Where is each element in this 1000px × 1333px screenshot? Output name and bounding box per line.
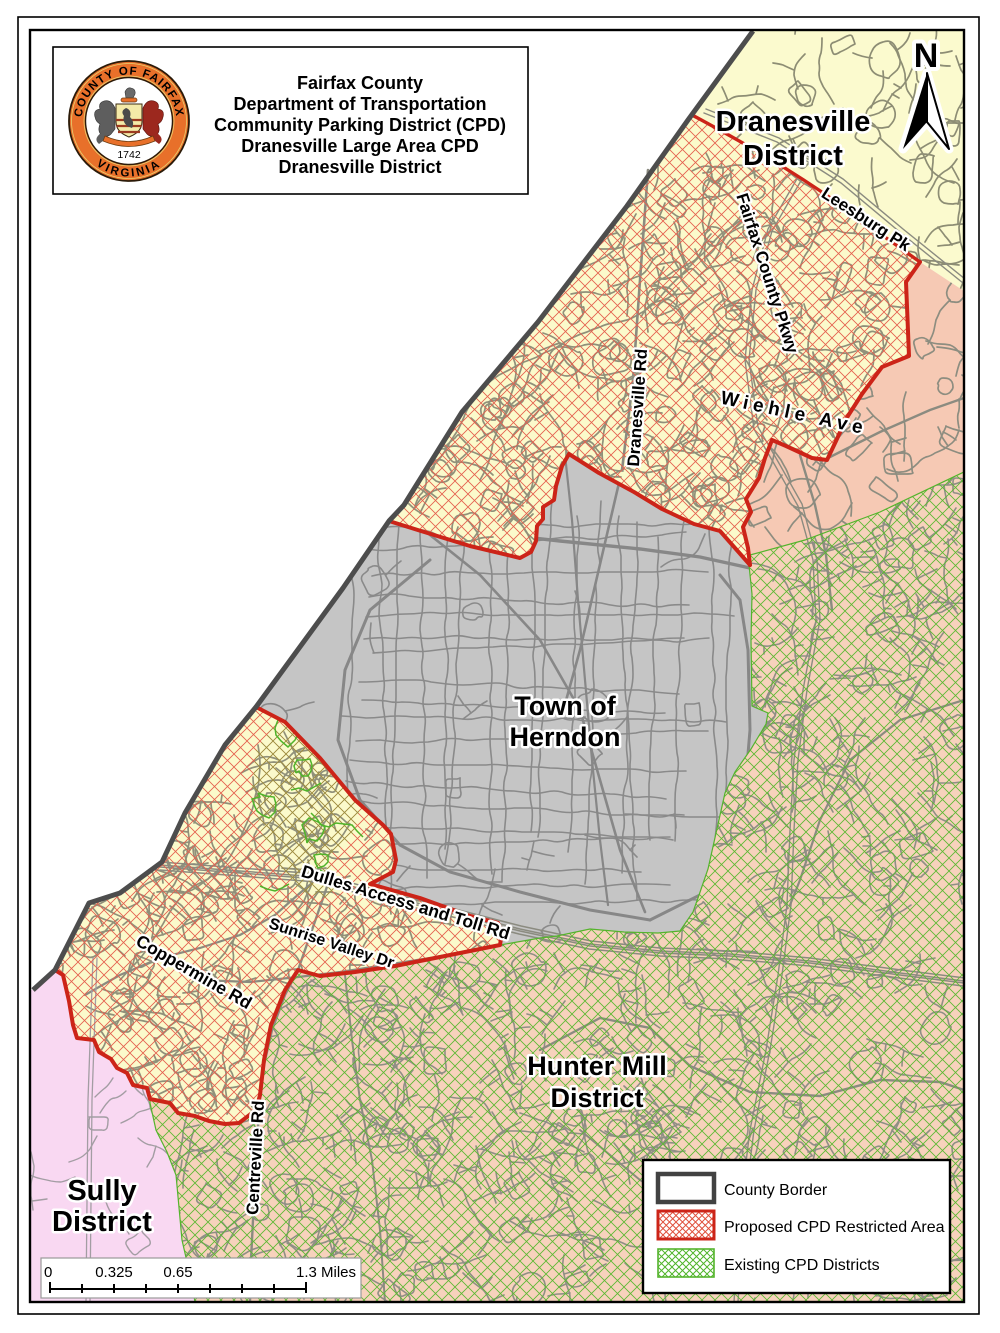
svg-text:District: District — [52, 1206, 152, 1238]
svg-text:Community Parking District (CP: Community Parking District (CPD) — [214, 115, 506, 135]
svg-text:N: N — [914, 37, 939, 75]
svg-text:0.65: 0.65 — [163, 1264, 192, 1281]
svg-text:District: District — [550, 1083, 643, 1113]
svg-text:Sully: Sully — [67, 1175, 136, 1207]
svg-text:1742: 1742 — [117, 149, 141, 161]
svg-text:Town of: Town of — [514, 691, 616, 721]
svg-text:1.3 Miles: 1.3 Miles — [296, 1264, 356, 1281]
svg-text:Dranesville: Dranesville — [716, 106, 871, 138]
svg-text:Dranesville District: Dranesville District — [278, 157, 441, 177]
svg-text:Hunter Mill: Hunter Mill — [527, 1051, 667, 1081]
svg-text:Proposed CPD Restricted Area: Proposed CPD Restricted Area — [724, 1219, 945, 1236]
svg-text:Dranesville Large Area CPD: Dranesville Large Area CPD — [241, 136, 478, 156]
svg-text:0: 0 — [44, 1264, 52, 1281]
svg-text:0.325: 0.325 — [95, 1264, 133, 1281]
svg-text:County Border: County Border — [724, 1182, 828, 1199]
svg-text:Existing CPD Districts: Existing CPD Districts — [724, 1257, 880, 1274]
svg-text:Department of Transportation: Department of Transportation — [233, 94, 486, 114]
svg-text:District: District — [743, 140, 843, 172]
svg-text:Herndon: Herndon — [510, 722, 621, 752]
svg-text:Fairfax County: Fairfax County — [297, 73, 423, 93]
